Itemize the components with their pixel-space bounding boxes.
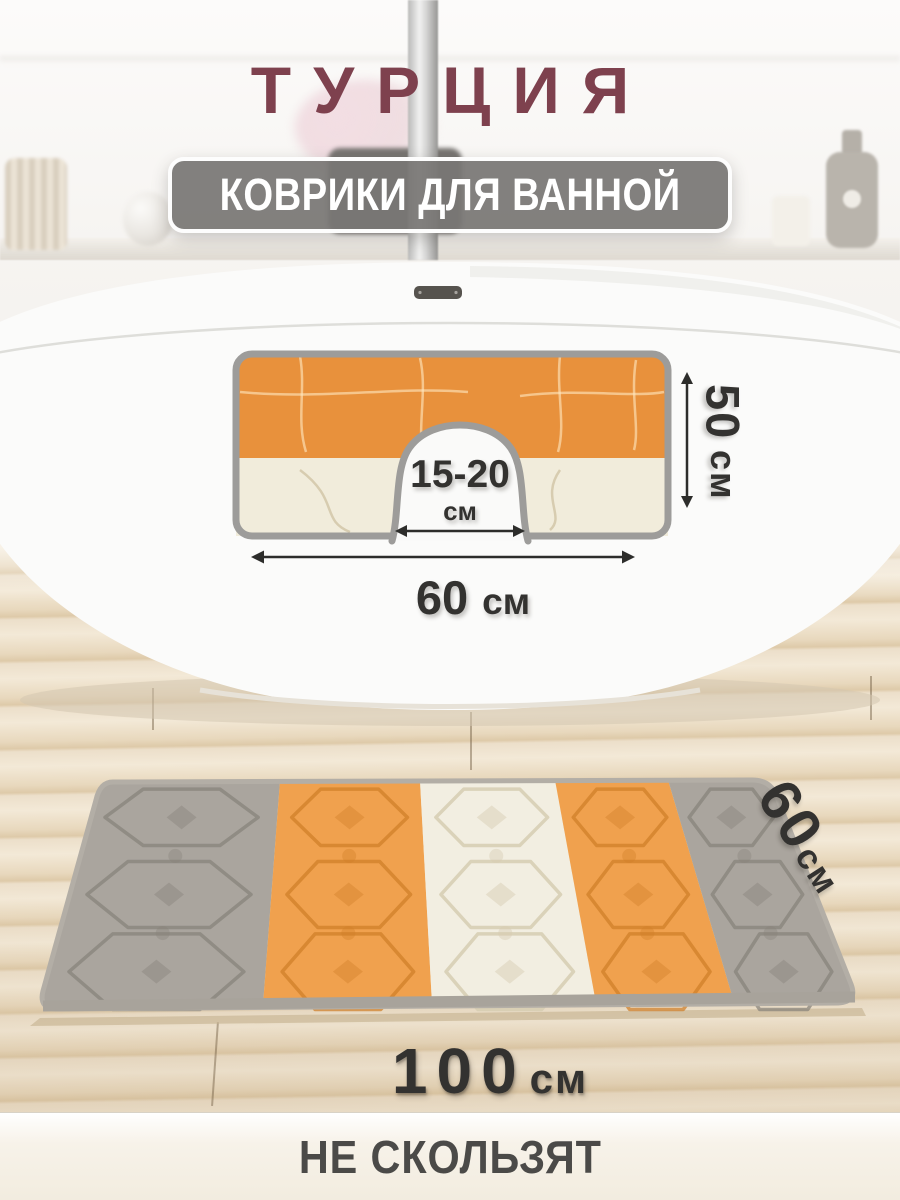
length-unit: см [530, 1055, 588, 1102]
height-value: 50 [696, 384, 751, 440]
rect-mat-shape [30, 780, 866, 1026]
footer-strip: НЕ СКОЛЬЗЯТ [0, 1112, 900, 1200]
height-unit: см [702, 450, 744, 501]
width-value: 60 [416, 571, 468, 624]
rect-mat-length-label: 100см [75, 1034, 900, 1108]
nonslip-note: НЕ СКОЛЬЗЯТ [299, 1130, 602, 1184]
length-value: 100 [392, 1035, 526, 1107]
contour-mat-height-label: 50 см [694, 372, 752, 512]
overflow-screw [454, 291, 457, 294]
category-badge-label: КОВРИКИ ДЛЯ ВАННОЙ [220, 169, 681, 221]
product-card: ТУРЦИЯ КОВРИКИ ДЛЯ ВАННОЙ [0, 0, 900, 1200]
contour-mat-width-label: 60см [273, 570, 673, 625]
overflow-screw [418, 291, 421, 294]
category-badge: КОВРИКИ ДЛЯ ВАННОЙ [168, 157, 732, 233]
contour-mat-cutout-label: 15-20 см [380, 455, 540, 525]
width-unit: см [482, 581, 530, 622]
cutout-unit: см [380, 498, 540, 525]
cutout-value: 15-20 [380, 455, 540, 496]
page-title: ТУРЦИЯ [0, 52, 880, 128]
